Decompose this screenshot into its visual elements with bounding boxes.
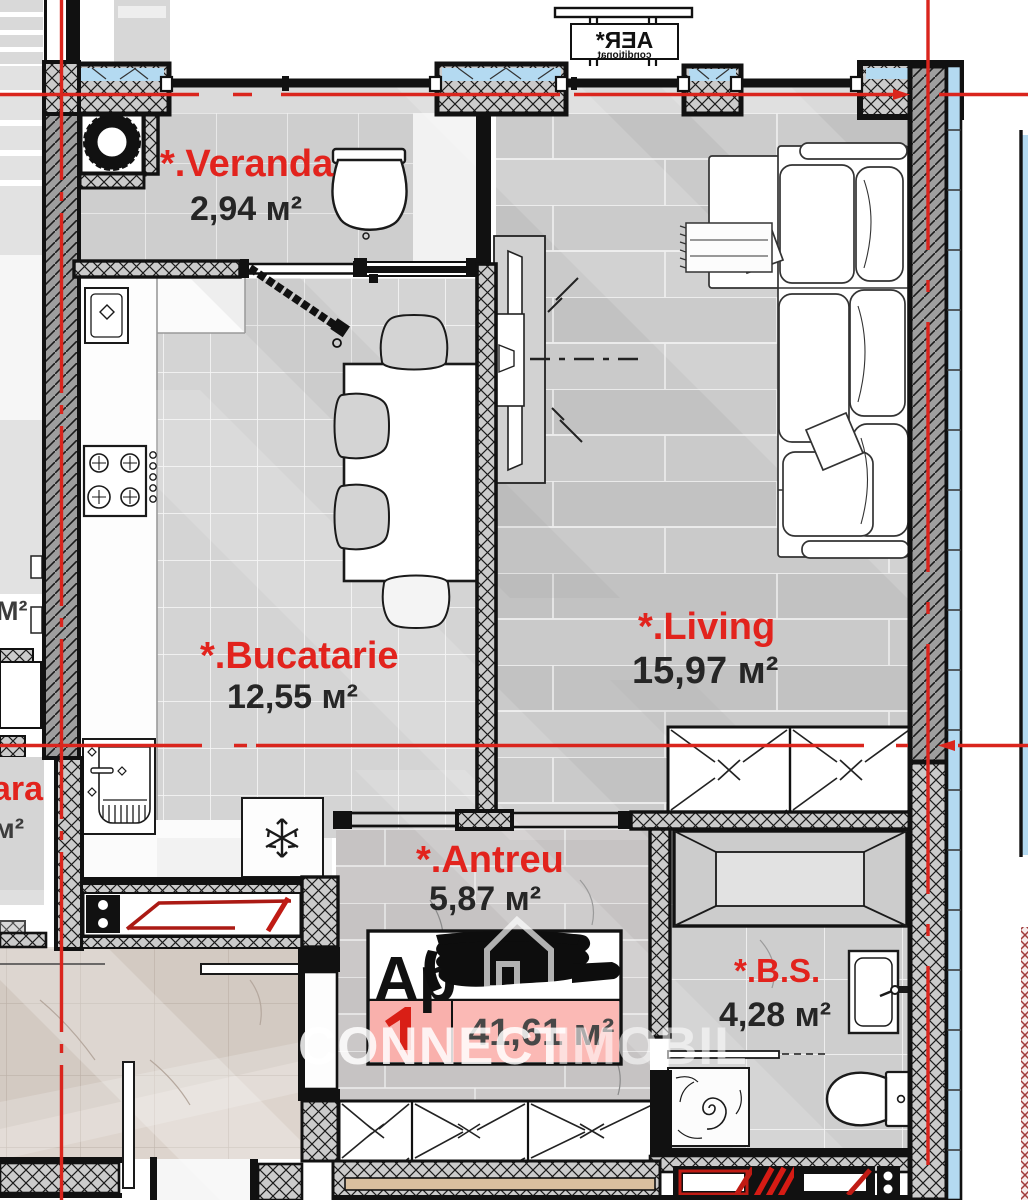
svg-text:2,94 м²: 2,94 м² xyxy=(190,190,302,228)
svg-text:CONNECT: CONNECT xyxy=(298,1017,567,1076)
svg-text:12,55 м²: 12,55 м² xyxy=(227,678,358,716)
svg-text:ara: ara xyxy=(0,770,44,808)
svg-text:*.B.S.: *.B.S. xyxy=(734,952,820,989)
svg-text:М²: М² xyxy=(0,596,27,626)
svg-text:5,87 м²: 5,87 м² xyxy=(429,880,541,918)
svg-text:IMOBIL: IMOBIL xyxy=(556,1017,747,1076)
svg-text:*.Living: *.Living xyxy=(638,606,775,648)
svg-text:*.Veranda: *.Veranda xyxy=(160,143,334,185)
svg-text:*.Antreu: *.Antreu xyxy=(416,839,564,881)
svg-text:*.Bucatarie: *.Bucatarie xyxy=(200,635,399,677)
svg-text:15,97 м²: 15,97 м² xyxy=(632,650,778,692)
svg-text:м²: м² xyxy=(0,813,24,844)
svg-text:conditionat: conditionat xyxy=(597,50,652,61)
